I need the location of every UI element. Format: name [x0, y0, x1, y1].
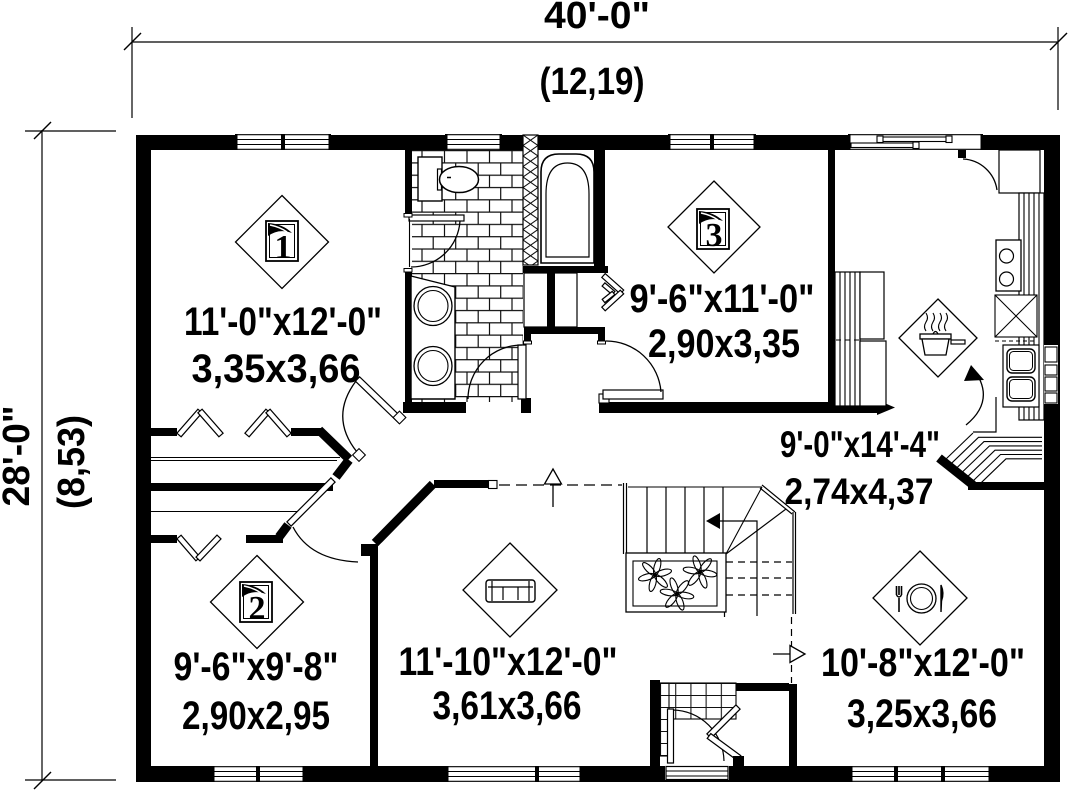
svg-text:9'-6"x11'-0": 9'-6"x11'-0"	[630, 277, 815, 321]
svg-text:(12,19): (12,19)	[540, 61, 645, 103]
svg-text:40'-0": 40'-0"	[544, 0, 650, 37]
svg-text:(8,53): (8,53)	[51, 415, 93, 509]
svg-text:3: 3	[706, 217, 723, 254]
svg-text:2,74x4,37: 2,74x4,37	[785, 471, 934, 512]
svg-text:3,61x3,66: 3,61x3,66	[433, 684, 582, 728]
svg-text:11'-0"x12'-0": 11'-0"x12'-0"	[184, 300, 382, 344]
svg-text:3,35x3,66: 3,35x3,66	[192, 347, 361, 391]
svg-text:2,90x2,95: 2,90x2,95	[182, 694, 330, 738]
svg-text:11'-10"x12'-0": 11'-10"x12'-0"	[399, 640, 618, 684]
svg-text:2: 2	[249, 590, 266, 627]
svg-text:2,90x3,35: 2,90x3,35	[648, 322, 800, 366]
svg-text:28'-0": 28'-0"	[0, 406, 38, 507]
svg-text:9'-0"x14'-4": 9'-0"x14'-4"	[780, 424, 940, 465]
svg-text:3,25x3,66: 3,25x3,66	[847, 692, 997, 736]
svg-text:10'-8"x12'-0": 10'-8"x12'-0"	[821, 641, 1025, 685]
svg-text:1: 1	[275, 229, 292, 266]
svg-text:9'-6"x9'-8": 9'-6"x9'-8"	[174, 645, 339, 689]
